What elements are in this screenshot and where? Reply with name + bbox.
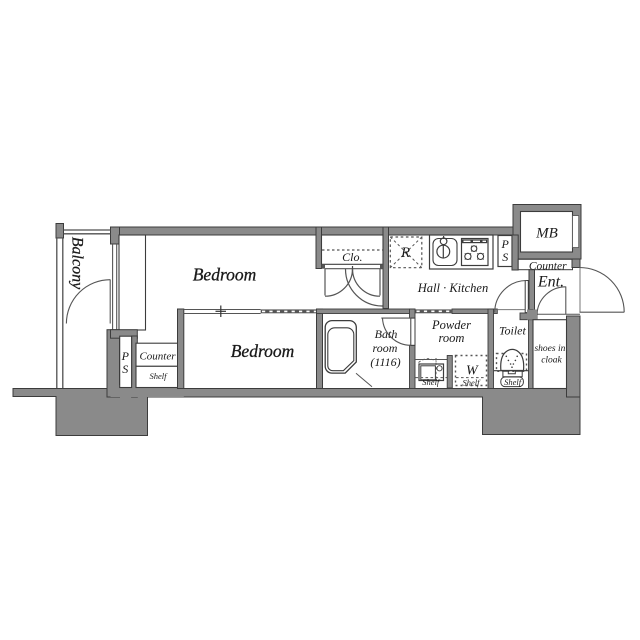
svg-text:W: W: [466, 364, 479, 379]
svg-text:Powder: Powder: [431, 318, 471, 332]
svg-text:Hall · Kitchen: Hall · Kitchen: [417, 281, 488, 295]
svg-text:Shelf: Shelf: [422, 377, 441, 387]
svg-text:Bedroom: Bedroom: [193, 265, 257, 285]
svg-text:shoes in: shoes in: [534, 344, 565, 354]
svg-text:Bath: Bath: [375, 327, 398, 341]
svg-text:Toilet: Toilet: [499, 323, 527, 337]
svg-text:room: room: [373, 341, 398, 355]
svg-text:(1116): (1116): [370, 355, 400, 369]
svg-text:R: R: [400, 245, 410, 261]
svg-text:Counter: Counter: [139, 351, 176, 363]
svg-text:room: room: [439, 331, 465, 345]
svg-text:Shelf: Shelf: [463, 378, 482, 388]
svg-text:Shelf: Shelf: [150, 371, 169, 381]
svg-text:MB: MB: [535, 226, 558, 242]
svg-text:S: S: [122, 362, 128, 376]
svg-text:P: P: [501, 237, 510, 251]
svg-text:cloak: cloak: [541, 355, 562, 365]
svg-text:S: S: [502, 250, 508, 264]
svg-text:Bedroom: Bedroom: [231, 341, 295, 361]
svg-text:Shelf: Shelf: [504, 377, 523, 387]
svg-text:Clo.: Clo.: [342, 250, 362, 264]
svg-text:Balcony: Balcony: [68, 237, 85, 290]
svg-text:P: P: [121, 349, 130, 363]
